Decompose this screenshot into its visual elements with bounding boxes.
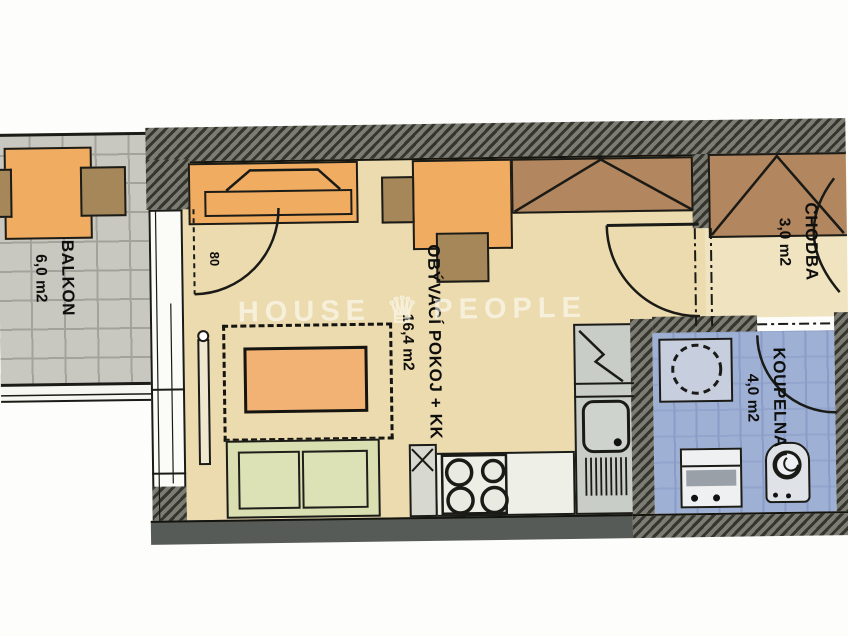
label-balkon: BALKON 6,0 m2 bbox=[27, 208, 83, 349]
room-area: 6,0 m2 bbox=[27, 208, 55, 348]
wall-left-bottom-block bbox=[152, 486, 186, 520]
wall-bottom-right bbox=[633, 511, 848, 538]
bed-table bbox=[243, 346, 368, 414]
kitchen-tall-unit bbox=[573, 323, 636, 515]
washing-machine bbox=[680, 448, 743, 509]
sofa-cushion-left bbox=[238, 451, 301, 510]
floorplan: BALKON 6,0 m2 OBÝVACÍ POKOJ + KK 16,4 m2… bbox=[0, 0, 848, 636]
balcony-chair-left bbox=[0, 169, 13, 218]
wall-corner-left bbox=[146, 159, 191, 210]
watermark: HOUSE ♕ PEOPLE bbox=[238, 290, 588, 331]
wardrobe-living bbox=[511, 156, 694, 214]
shower-tray bbox=[658, 338, 733, 403]
sideboard-shelf bbox=[204, 189, 352, 217]
floorplan-scan: BALKON 6,0 m2 OBÝVACÍ POKOJ + KK 16,4 m2… bbox=[0, 0, 848, 636]
room-name: KOUPELNA bbox=[764, 325, 794, 470]
kitchen-counter bbox=[435, 451, 576, 517]
balcony-edge-band bbox=[1, 382, 151, 403]
wall-kitchen-bath bbox=[630, 319, 655, 514]
watermark-word-left: HOUSE bbox=[238, 294, 372, 329]
wall-window-left bbox=[148, 209, 186, 520]
sofa-cushion-right bbox=[302, 450, 369, 509]
label-door-width: 80 bbox=[208, 241, 222, 277]
room-name: OBÝVACÍ POKOJ + KK bbox=[418, 192, 450, 492]
wall-bath-right bbox=[834, 312, 848, 511]
room-area: 4,0 m2 bbox=[739, 325, 767, 470]
room-area: 16,4 m2 bbox=[393, 192, 423, 492]
watermark-word-right: PEOPLE bbox=[433, 291, 587, 326]
door-width-value: 80 bbox=[207, 252, 222, 267]
label-koupelna: KOUPELNA 4,0 m2 bbox=[739, 325, 795, 471]
balcony-chair-right bbox=[80, 166, 127, 217]
radiator bbox=[197, 339, 211, 465]
room-name: CHODBA bbox=[796, 180, 826, 302]
room-name: BALKON bbox=[52, 208, 82, 348]
label-obyvaci-pokoj: OBÝVACÍ POKOJ + KK 16,4 m2 bbox=[393, 192, 451, 493]
room-area: 3,0 m2 bbox=[771, 181, 798, 303]
label-chodba: CHODBA 3,0 m2 bbox=[771, 180, 826, 303]
watermark-crown-icon: ♕ bbox=[386, 292, 419, 328]
